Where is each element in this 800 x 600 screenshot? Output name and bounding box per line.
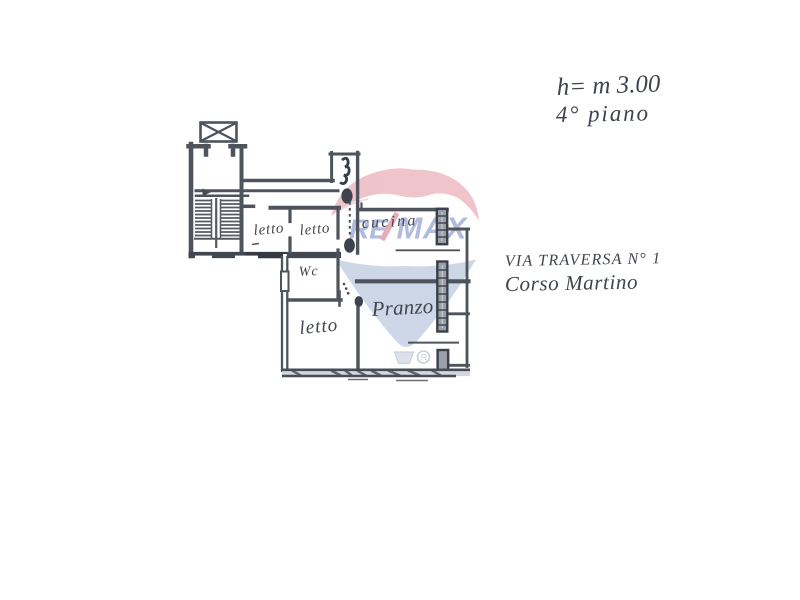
svg-text:letto: letto <box>299 220 331 239</box>
svg-text:4° piano: 4° piano <box>556 100 650 127</box>
svg-text:R: R <box>421 352 428 362</box>
svg-text:h= m 3.00: h= m 3.00 <box>556 70 661 101</box>
svg-text:cucina: cucina <box>361 212 418 232</box>
svg-text:Corso Martino: Corso Martino <box>505 270 639 296</box>
svg-text:letto: letto <box>253 220 285 239</box>
svg-text:letto: letto <box>299 315 339 339</box>
svg-text:Wc: Wc <box>298 264 319 280</box>
svg-text:VIA TRAVERSA N° 1: VIA TRAVERSA N° 1 <box>505 250 662 270</box>
svg-text:Pranzo: Pranzo <box>370 294 434 321</box>
